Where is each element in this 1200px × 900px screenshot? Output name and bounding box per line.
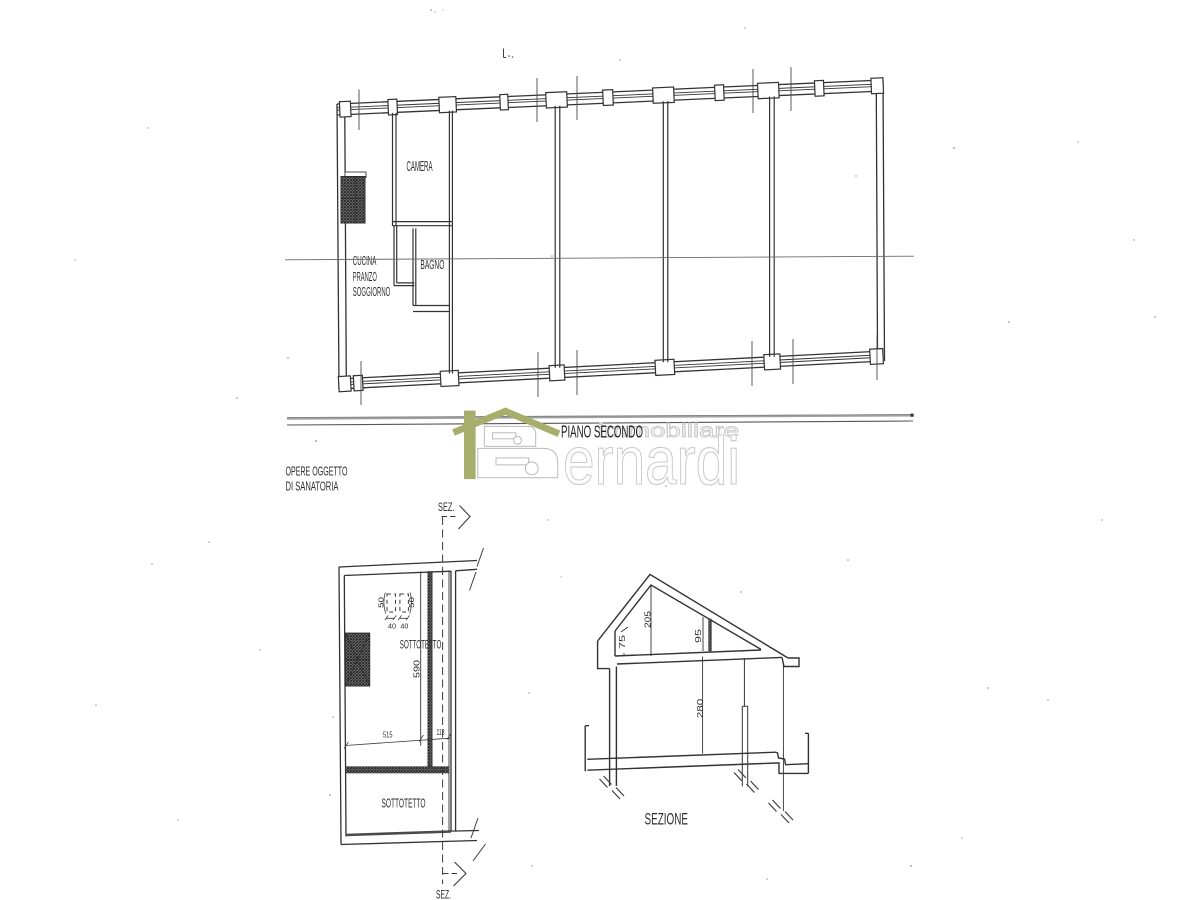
svg-text:40: 40 (400, 622, 408, 631)
svg-text:50: 50 (377, 597, 386, 608)
svg-text:SEZIONE: SEZIONE (645, 810, 689, 829)
svg-text:DI SANATORIA: DI SANATORIA (286, 479, 339, 494)
svg-text:280: 280 (695, 698, 705, 718)
svg-text:BAGNO: BAGNO (420, 258, 444, 272)
svg-text:205: 205 (642, 611, 652, 628)
svg-text:590: 590 (412, 660, 422, 678)
svg-text:113: 113 (437, 728, 445, 737)
svg-text:CAMERA: CAMERA (407, 159, 433, 175)
svg-text:SEZ.: SEZ. (436, 888, 451, 900)
svg-text:PIANO SECONDO: PIANO SECONDO (561, 422, 643, 442)
svg-text:SOTTOTETTO: SOTTOTETTO (382, 796, 426, 811)
svg-text:SEZ.: SEZ. (438, 500, 455, 514)
svg-text:95: 95 (693, 629, 703, 643)
svg-text:OPERE OGGETTO: OPERE OGGETTO (286, 464, 348, 479)
svg-text:SOTTOTETTO: SOTTOTETTO (400, 640, 442, 652)
svg-text:50: 50 (407, 597, 416, 608)
svg-text:515: 515 (383, 730, 393, 740)
svg-text:75: 75 (617, 635, 627, 649)
svg-text:CUCINA: CUCINA (353, 253, 377, 268)
svg-text:40: 40 (388, 622, 396, 631)
svg-text:PRANZO: PRANZO (353, 269, 377, 284)
svg-text:SOGGIORNO: SOGGIORNO (353, 284, 391, 299)
